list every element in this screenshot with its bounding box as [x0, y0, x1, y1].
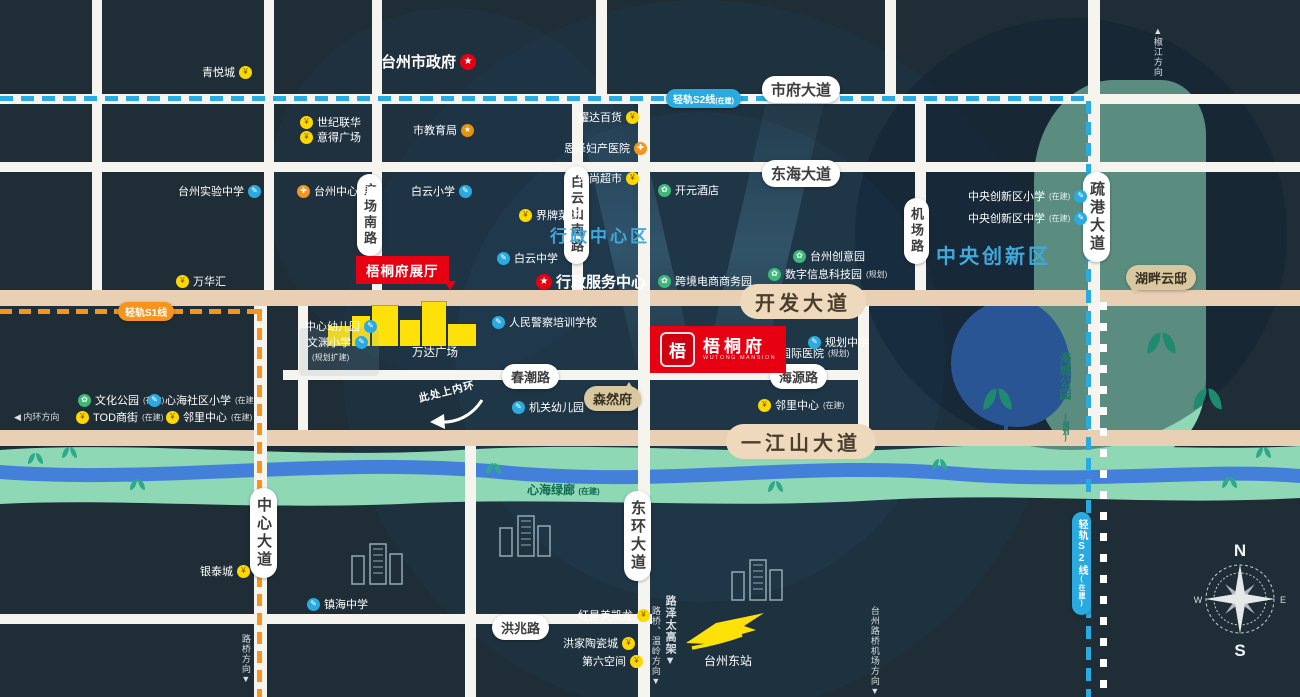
- road-label-kaifa: 开发大道: [740, 284, 866, 319]
- tree-icon: [1193, 387, 1222, 410]
- poi-wenyuan-status: (规划扩建): [312, 352, 349, 363]
- poi-label: 机关幼儿园: [529, 399, 584, 415]
- compass-east: E: [1280, 595, 1286, 605]
- poi-label: 银泰城: [200, 563, 233, 579]
- plant-icon: [768, 480, 783, 492]
- poi-label: 万华汇: [193, 273, 226, 289]
- poi-label: 界牌菜场: [536, 207, 580, 223]
- school-icon: ✎: [512, 401, 525, 414]
- poi-label: 台州创意园: [810, 248, 865, 264]
- mall-icon: ¥: [630, 655, 643, 668]
- poi-label: 中心幼儿园: [305, 318, 360, 334]
- poi-label: 中央创新区中学: [968, 210, 1045, 226]
- poi-baiyun-primary-school: 白云小学 ✎: [411, 183, 472, 199]
- senranfu-pointer: [624, 382, 634, 390]
- showroom-pointer: [444, 281, 456, 290]
- road-hongzhao: [0, 614, 652, 624]
- poi-status: (规划扩建): [312, 352, 349, 363]
- compass-west: W: [1194, 595, 1203, 605]
- poi-label: 台州中心医院: [314, 183, 380, 199]
- poi-zhenhai-middle-school: ✎ 镇海中学: [307, 596, 368, 612]
- road-v-west2: [264, 0, 274, 290]
- area-central-innovation: 中央创新区: [936, 240, 1051, 269]
- poi-label: 市教育局: [413, 122, 457, 138]
- road-v-north-center: [596, 0, 607, 94]
- direction-luqiao: 路桥方向▼: [240, 634, 250, 685]
- wutong-name: 梧桐府: [703, 338, 776, 355]
- hupanyundi-pointer: [1130, 287, 1140, 295]
- haicheng-text: 海城公园: [1058, 352, 1072, 400]
- poi-admin-service-center: ★ 行政服务中心: [536, 271, 646, 292]
- wutong-name-en: WUTONG MANSION: [703, 355, 776, 361]
- wutong-seal-icon: 梧: [660, 332, 695, 367]
- road-v-south-center: [465, 446, 476, 697]
- poi-sixth-space: 第六空间 ¥: [582, 653, 643, 669]
- poi-label: 红星美凯龙: [578, 607, 633, 623]
- road-v-center-east: [858, 306, 869, 430]
- light-rail-s2-label: 轻轨S2线(在建): [666, 89, 741, 108]
- poi-label: 中央创新区小学: [968, 188, 1045, 204]
- taizhou-east-station-icon: [680, 610, 768, 654]
- poi-label: 第六空间: [582, 653, 626, 669]
- road-label-donghai: 东海大道: [762, 160, 840, 187]
- mall-icon: ¥: [166, 411, 179, 424]
- poi-label: 欧尚超市: [578, 170, 622, 186]
- poi-jiguan-kindergarten: ✎ 机关幼儿园: [512, 399, 584, 415]
- school-icon: ✎: [808, 336, 821, 349]
- road-label-jichang: 机场路: [904, 198, 929, 264]
- poi-label: 镇海中学: [324, 596, 368, 612]
- haicheng-status: (规划): [1062, 414, 1069, 442]
- road-label-chunchao: 春潮路: [502, 364, 559, 389]
- area-admin-center: 行政中心区: [550, 222, 650, 247]
- poi-status: (在建): [1049, 213, 1070, 224]
- poi-label: 邻里中心: [775, 397, 819, 413]
- road-v-west: [92, 0, 102, 290]
- plant-icon: [932, 458, 947, 470]
- greenway-text: 心海绿廊: [527, 483, 575, 497]
- mall-icon: ¥: [758, 399, 771, 412]
- road-v-ne: [885, 0, 896, 94]
- mall-icon: ¥: [519, 209, 532, 222]
- railway-dashed-line: [1100, 302, 1107, 697]
- park-icon: ✿: [768, 268, 781, 281]
- hotel-icon: ✿: [658, 184, 671, 197]
- compass-south: S: [1234, 641, 1245, 660]
- plant-icon: [28, 452, 43, 464]
- poi-label: 数字信息科技园: [785, 266, 862, 282]
- poi-status: (在建): [1049, 191, 1070, 202]
- poi-label: 青悦城: [202, 64, 235, 80]
- poi-xinhai-community-school: ✎ 心海社区小学 (在建): [148, 392, 256, 408]
- road-label-shifu: 市府大道: [762, 76, 840, 103]
- poi-planned-middle-school: ✎ 规划中学: [808, 334, 869, 350]
- poi-label: 心海社区小学: [165, 392, 231, 408]
- poi-cross-border-ecommerce-park: ✿ 跨境电商商务园: [658, 273, 752, 289]
- school-icon: ✎: [364, 320, 377, 333]
- plant-icon: [130, 478, 145, 490]
- poi-central-kindergarten: 中心幼儿园 ✎: [305, 318, 377, 334]
- poi-yintai-city: 银泰城 ¥: [200, 563, 250, 579]
- school-icon: ✎: [492, 316, 505, 329]
- mall-icon: ¥: [626, 172, 639, 185]
- poi-label: 跨境电商商务园: [675, 273, 752, 289]
- compass-north: N: [1234, 541, 1246, 560]
- mall-icon: ¥: [237, 565, 250, 578]
- taizhou-east-station-label: 台州东站: [692, 652, 764, 669]
- gov-icon: ★: [461, 124, 474, 137]
- poi-baiyun-middle-school: ✎ 白云中学: [497, 250, 558, 266]
- wanda-plaza-label: 万达广场: [400, 344, 470, 360]
- direction-north-jiaojiang: ▲椒江方向: [1152, 26, 1162, 77]
- poi-wanhuahui: ¥ 万华汇: [176, 273, 226, 289]
- mall-icon: ¥: [300, 116, 313, 129]
- poi-taizhou-experimental-school: 台州实验中学 ✎: [178, 183, 261, 199]
- plant-icon: [1222, 476, 1237, 488]
- poi-taizhou-city-government: 台州市政府 ★: [381, 51, 476, 72]
- poi-auchan-supermarket: 欧尚超市 ¥: [578, 170, 639, 186]
- tree-icon: [1147, 331, 1176, 354]
- direction-inner-ring: ◀ 内环方向: [14, 410, 59, 423]
- buildings-icon: [498, 512, 554, 558]
- poi-qingyuecheng: 青悦城 ¥: [202, 64, 252, 80]
- inner-ring-arrow: [428, 398, 486, 430]
- poi-label: 白云小学: [411, 183, 455, 199]
- poi-neighborhood-center-east: ¥ 邻里中心 (在建): [758, 397, 844, 413]
- mall-icon: ¥: [176, 275, 189, 288]
- poi-neighborhood-center-west: ¥ 邻里中心 (在建): [166, 409, 252, 425]
- poi-label: 意得广场: [317, 129, 361, 145]
- poi-label: 恩泽妇产医院: [564, 140, 630, 156]
- poi-digital-info-tech-park: ✿ 数字信息科技园 (规划): [768, 266, 887, 282]
- school-icon: ✎: [148, 394, 161, 407]
- poi-label: 文化公园: [95, 392, 139, 408]
- s2-status: (在建): [715, 98, 734, 105]
- poi-innovation-district-primary: 中央创新区小学 (在建) ✎: [968, 188, 1087, 204]
- hospital-icon: ✚: [634, 142, 647, 155]
- direction-airport: 台州路桥机场方向▼: [869, 606, 879, 697]
- school-icon: ✎: [459, 185, 472, 198]
- buildings-icon: [350, 540, 406, 586]
- gov-icon: ★: [536, 274, 552, 290]
- school-icon: ✎: [497, 252, 510, 265]
- poi-kaiyuan-hotel: ✿ 开元酒店: [658, 182, 719, 198]
- poi-label: 邻里中心: [183, 409, 227, 425]
- poi-label: 耀达百货: [578, 109, 622, 125]
- direction-luzetai-viaduct: 路泽太高架▼: [664, 595, 676, 668]
- poi-label: 规划中学: [825, 334, 869, 350]
- poi-status: (在建): [231, 412, 252, 423]
- poi-label: 台州实验中学: [178, 183, 244, 199]
- mall-icon: ¥: [622, 637, 635, 650]
- wutong-mansion-logo: 梧 梧桐府 WUTONG MANSION: [650, 326, 786, 373]
- park-icon: ✿: [793, 250, 806, 263]
- poi-label: 洪家陶瓷城: [563, 635, 618, 651]
- buildings-icon: [730, 556, 786, 602]
- admin-service-label: 行政服务中心: [556, 271, 646, 292]
- mall-icon: ¥: [637, 609, 650, 622]
- poi-taizhou-creative-park: ✿ 台州创意园: [793, 248, 865, 264]
- poi-status: (在建): [823, 400, 844, 411]
- s2-label-text: 轻轨S2线: [673, 95, 715, 106]
- plant-icon: [486, 462, 501, 474]
- road-label-donghuan: 东环大道: [624, 491, 651, 581]
- s2v-label-text: 轻轨S2线: [1076, 519, 1087, 576]
- poi-innovation-district-middle: 中央创新区中学 (在建) ✎: [968, 210, 1087, 226]
- road-label-zhongxin: 中心大道: [250, 488, 277, 578]
- greenway-status: (在建): [578, 487, 599, 496]
- city-gov-label: 台州市政府: [381, 51, 456, 72]
- poi-tod-shopping-street: ¥ TOD商街 (在建): [76, 409, 163, 425]
- compass-rose: N S W E: [1192, 538, 1288, 660]
- hospital-icon: ✚: [297, 185, 310, 198]
- poi-label: 白云中学: [514, 250, 558, 266]
- road-label-yijiangshan: 一江山大道: [726, 424, 876, 459]
- direction-luqiao-wenling: 路桥、温岭方向▼: [650, 606, 660, 687]
- location-map: 万达广场 台州东站 市府大道 东海大道 开发大道 一江山大道 春潮: [0, 0, 1300, 697]
- school-icon: ✎: [1074, 212, 1087, 225]
- light-rail-s1-label: 轻轨S1线: [118, 302, 174, 321]
- light-rail-s2-label-vertical: 轻轨S2线(在建): [1072, 512, 1091, 615]
- school-icon: ✎: [355, 336, 368, 349]
- poi-status: (规划): [866, 269, 887, 280]
- mall-icon: ¥: [76, 411, 89, 424]
- poi-label: 世纪联华: [317, 114, 361, 130]
- poi-yide-plaza: ¥ 意得广场: [300, 129, 361, 145]
- poi-label: 文渊小学: [307, 334, 351, 350]
- poi-police-training-school: ✎ 人民警察培训学校: [492, 314, 597, 330]
- mall-icon: ¥: [300, 131, 313, 144]
- road-donghai-avenue: [0, 162, 1300, 172]
- road-label-hongzhao: 洪兆路: [492, 615, 549, 640]
- mall-icon: ¥: [626, 111, 639, 124]
- area-haicheng-park: 海城公园 (规划): [1057, 352, 1074, 442]
- light-rail-s2-line: [0, 96, 1092, 101]
- wutong-showroom-label: 梧桐府展厅: [356, 256, 449, 284]
- poi-status: (在建): [142, 412, 163, 423]
- poi-education-bureau: 市教育局 ★: [413, 122, 474, 138]
- plant-icon: [1256, 446, 1271, 458]
- school-icon: ✎: [248, 185, 261, 198]
- poi-taizhou-central-hospital: ✚ 台州中心医院: [297, 183, 380, 199]
- poi-wenyuan-primary-school: 文渊小学 ✎: [307, 334, 368, 350]
- gov-icon: ★: [460, 54, 476, 70]
- poi-label: TOD商街: [93, 409, 138, 425]
- park-icon: ✿: [78, 394, 91, 407]
- area-greenway: 心海绿廊 (在建): [527, 481, 600, 498]
- park-icon: ✿: [658, 275, 671, 288]
- school-icon: ✎: [307, 598, 320, 611]
- poi-jiepai-market: ¥ 界牌菜场: [519, 207, 580, 223]
- poi-enze-maternity-hospital: 恩泽妇产医院 ✚: [564, 140, 647, 156]
- poi-macalline: 红星美凯龙 ¥: [578, 607, 650, 623]
- s1-label-text: 轻轨S1线: [125, 308, 167, 319]
- mall-icon: ¥: [239, 66, 252, 79]
- poi-label: 开元酒店: [675, 182, 719, 198]
- poi-label: 人民警察培训学校: [509, 314, 597, 330]
- school-icon: ✎: [1074, 190, 1087, 203]
- poi-hongjia-ceramics-city: 洪家陶瓷城 ¥: [563, 635, 635, 651]
- poi-yaoda-department-store: 耀达百货 ¥: [578, 109, 639, 125]
- s2v-status: (在建): [1078, 576, 1085, 608]
- tree-icon: [983, 387, 1012, 410]
- plant-icon: [62, 446, 77, 458]
- poi-status: (在建): [235, 395, 256, 406]
- poi-shiji-lianhua: ¥ 世纪联华: [300, 114, 361, 130]
